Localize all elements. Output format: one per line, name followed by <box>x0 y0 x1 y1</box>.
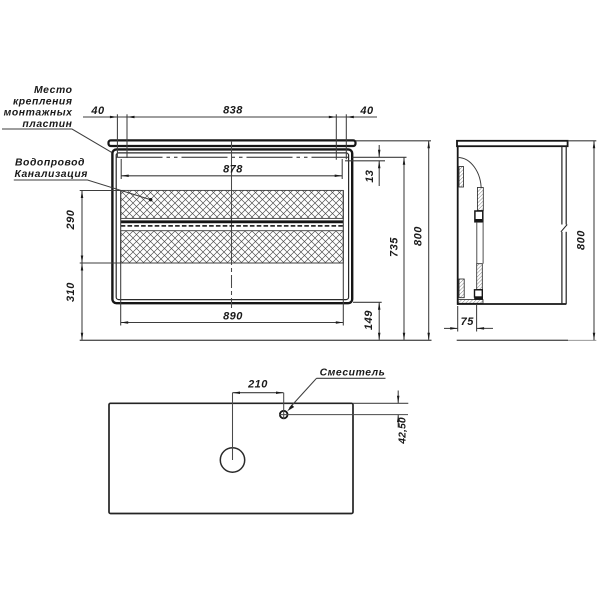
svg-text:290: 290 <box>65 209 77 230</box>
svg-text:800: 800 <box>576 230 588 250</box>
svg-text:Канализация: Канализация <box>15 169 88 180</box>
svg-text:42,50: 42,50 <box>398 417 409 445</box>
svg-text:310: 310 <box>65 282 77 302</box>
svg-text:890: 890 <box>223 311 243 323</box>
svg-text:149: 149 <box>363 310 375 330</box>
svg-text:Смеситель: Смеситель <box>320 367 386 378</box>
svg-text:75: 75 <box>461 316 475 328</box>
svg-text:Водопровод: Водопровод <box>15 158 85 169</box>
svg-text:Место: Место <box>34 85 73 96</box>
svg-text:800: 800 <box>413 226 425 246</box>
svg-text:878: 878 <box>223 164 243 176</box>
svg-text:пластин: пластин <box>22 119 72 130</box>
svg-text:210: 210 <box>247 378 268 390</box>
svg-text:838: 838 <box>223 105 243 117</box>
svg-text:40: 40 <box>90 105 105 117</box>
svg-text:монтажных: монтажных <box>4 108 74 119</box>
svg-text:735: 735 <box>389 237 401 257</box>
svg-text:40: 40 <box>359 105 374 117</box>
svg-text:13: 13 <box>364 170 376 183</box>
svg-text:крепления: крепления <box>13 96 73 107</box>
